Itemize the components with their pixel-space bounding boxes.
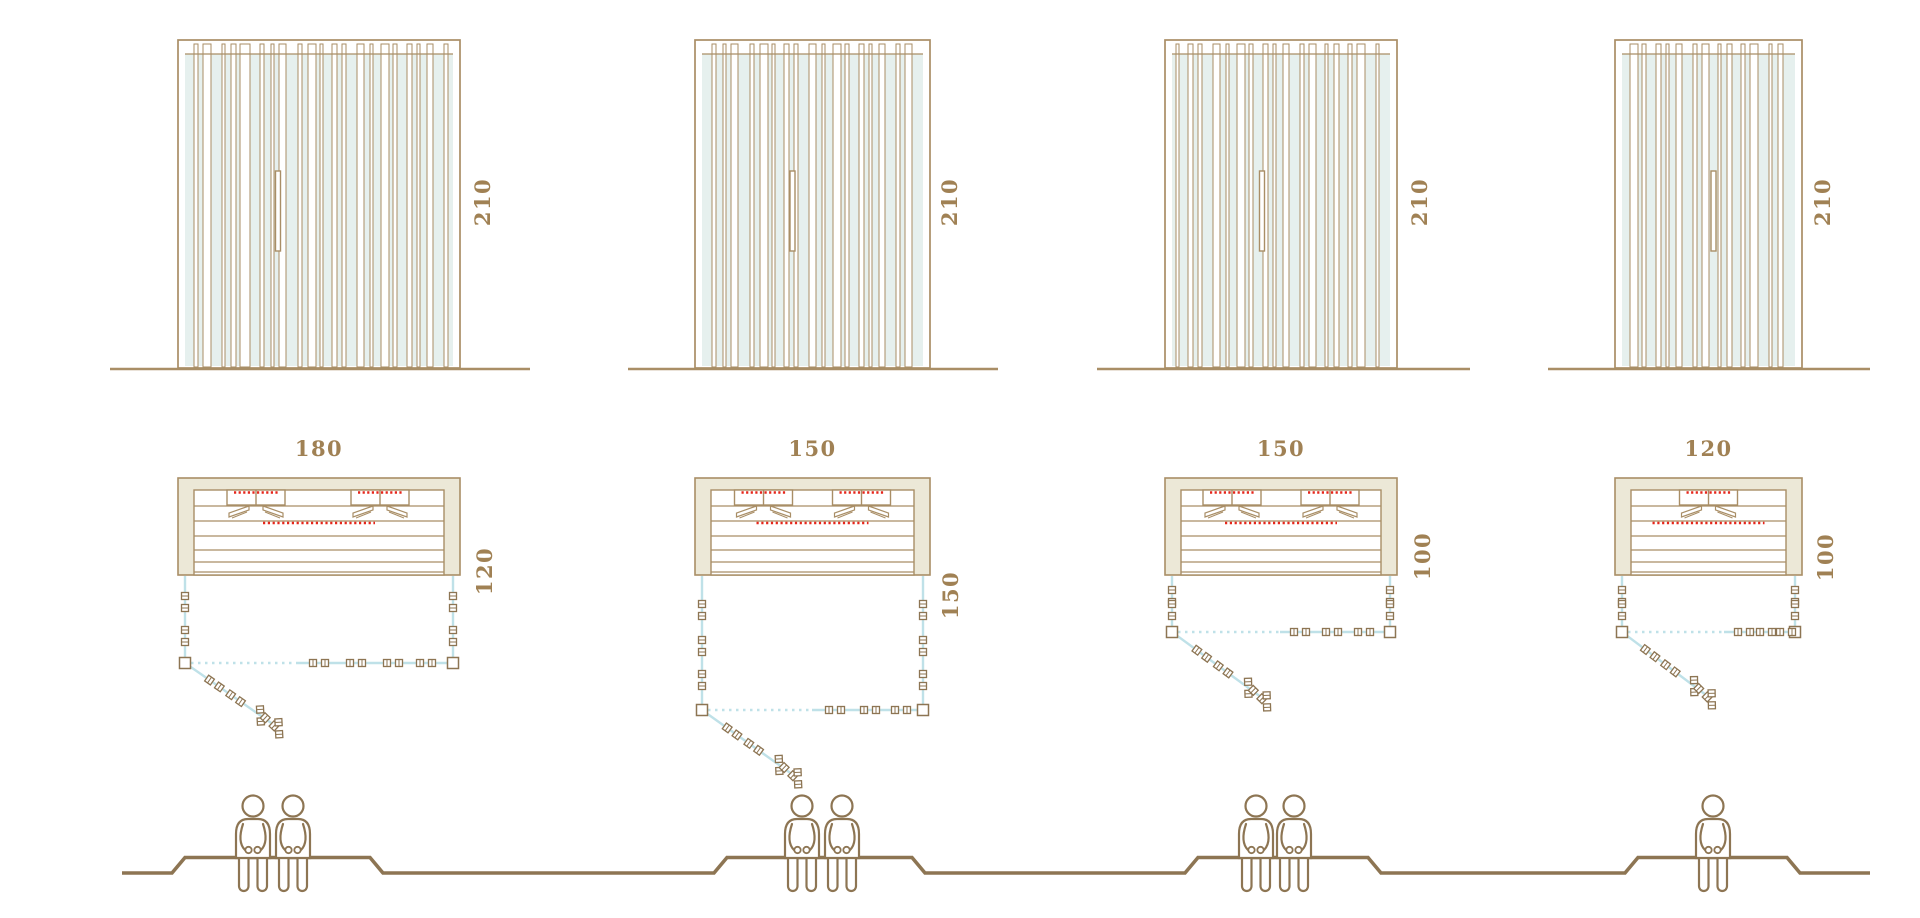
slat	[1727, 44, 1732, 367]
slat	[896, 44, 900, 367]
slat	[1702, 44, 1709, 367]
model-4-group: 210120100	[1548, 40, 1870, 709]
slat	[1300, 44, 1304, 367]
slat	[1642, 44, 1646, 367]
person-head	[283, 796, 304, 817]
door-handle	[790, 171, 795, 251]
seated-person-icon	[1277, 796, 1311, 892]
slat	[203, 44, 211, 367]
slat	[342, 44, 346, 367]
slat	[905, 44, 912, 367]
person-hand	[1295, 847, 1301, 853]
slat	[1325, 44, 1328, 367]
depth-dimension-label: 120	[472, 547, 497, 595]
seated-person-icon	[785, 796, 819, 892]
slat	[760, 44, 768, 367]
slat	[1656, 44, 1661, 367]
slat	[240, 44, 250, 367]
person-hand	[1714, 847, 1720, 853]
diagram-canvas: 210180120210150150210150100210120100	[0, 0, 1920, 918]
slat	[772, 44, 775, 367]
bench-profile-line	[122, 858, 1870, 874]
person-hand	[285, 847, 291, 853]
slat	[320, 44, 323, 367]
corner-pivot	[1617, 627, 1628, 638]
door-handle	[1711, 171, 1716, 251]
seated-person-icon	[276, 796, 310, 892]
slat	[417, 44, 420, 367]
seated-person-icon	[236, 796, 270, 892]
slat	[859, 44, 864, 367]
slat	[370, 44, 373, 367]
slat	[1334, 44, 1339, 367]
slat	[231, 44, 236, 367]
height-dimension-label: 210	[1407, 178, 1432, 226]
model-3-group: 210150100	[1097, 40, 1470, 711]
slat	[444, 44, 448, 367]
person-hand	[803, 847, 809, 853]
slat	[822, 44, 825, 367]
slat	[427, 44, 433, 367]
person-head	[1284, 796, 1305, 817]
slat	[731, 44, 738, 367]
sauna-size-comparison-diagram: 210180120210150150210150100210120100	[0, 0, 1920, 918]
person-hand	[254, 847, 260, 853]
slat	[260, 44, 264, 367]
slat	[357, 44, 364, 367]
seated-person-icon	[1239, 796, 1273, 892]
model-2-capacity-group	[785, 796, 859, 892]
slat	[1237, 44, 1245, 367]
person-hand	[1257, 847, 1263, 853]
depth-dimension-label: 150	[938, 571, 963, 619]
slat	[194, 44, 198, 367]
slat	[723, 44, 726, 367]
height-dimension-label: 210	[470, 178, 495, 226]
slat	[1348, 44, 1352, 367]
slat	[869, 44, 872, 367]
slat	[1718, 44, 1721, 367]
person-hand	[245, 847, 251, 853]
slat	[1693, 44, 1697, 367]
width-dimension-label: 120	[1684, 436, 1732, 461]
slat	[879, 44, 885, 367]
slat	[308, 44, 316, 367]
model-2-group: 210150150	[628, 40, 998, 788]
depth-dimension-label: 100	[1813, 533, 1838, 581]
person-hand	[294, 847, 300, 853]
person-head	[243, 796, 264, 817]
slat	[1769, 44, 1772, 367]
slat	[393, 44, 397, 367]
width-dimension-label: 180	[295, 436, 343, 461]
slat	[298, 44, 302, 367]
slat	[1188, 44, 1193, 367]
slat	[1249, 44, 1253, 367]
person-head	[1703, 796, 1724, 817]
slat	[1283, 44, 1289, 367]
slat	[809, 44, 816, 367]
corner-pivot	[448, 658, 459, 669]
slat	[833, 44, 841, 367]
model-4-capacity-group	[1696, 796, 1730, 892]
corner-pivot	[697, 705, 708, 716]
door-handle	[1260, 171, 1265, 251]
slat	[332, 44, 337, 367]
slat	[1630, 44, 1638, 367]
slat	[1176, 44, 1179, 367]
slat	[1309, 44, 1316, 367]
slat	[1226, 44, 1229, 367]
slat	[271, 44, 274, 367]
slat	[1213, 44, 1220, 367]
slat	[1676, 44, 1682, 367]
slat	[1273, 44, 1276, 367]
corner-pivot	[180, 658, 191, 669]
model-3-capacity-group	[1239, 796, 1311, 892]
model-1-capacity-group	[236, 796, 310, 892]
corner-pivot	[1385, 627, 1396, 638]
slat	[784, 44, 789, 367]
slat	[1741, 44, 1745, 367]
person-hand	[1286, 847, 1292, 853]
slat	[222, 44, 225, 367]
corner-pivot	[1167, 627, 1178, 638]
slat	[712, 44, 716, 367]
person-hand	[1705, 847, 1711, 853]
slat	[1666, 44, 1669, 367]
width-dimension-label: 150	[1257, 436, 1305, 461]
slat	[845, 44, 849, 367]
height-dimension-label: 210	[1810, 178, 1835, 226]
depth-dimension-label: 100	[1410, 532, 1435, 580]
slat	[750, 44, 754, 367]
seated-person-icon	[825, 796, 859, 892]
person-head	[1246, 796, 1267, 817]
person-hand	[834, 847, 840, 853]
corner-pivot	[918, 705, 929, 716]
person-hand	[794, 847, 800, 853]
seated-person-icon	[1696, 796, 1730, 892]
width-dimension-label: 150	[788, 436, 836, 461]
slat	[407, 44, 412, 367]
slat	[1376, 44, 1379, 367]
slat	[1357, 44, 1365, 367]
slat	[381, 44, 389, 367]
height-dimension-label: 210	[937, 178, 962, 226]
slat	[1778, 44, 1783, 367]
door-handle	[276, 171, 281, 251]
slat	[1750, 44, 1758, 367]
model-1-group: 210180120	[110, 40, 530, 738]
person-hand	[1248, 847, 1254, 853]
person-head	[792, 796, 813, 817]
person-head	[832, 796, 853, 817]
person-hand	[843, 847, 849, 853]
slat	[1198, 44, 1202, 367]
